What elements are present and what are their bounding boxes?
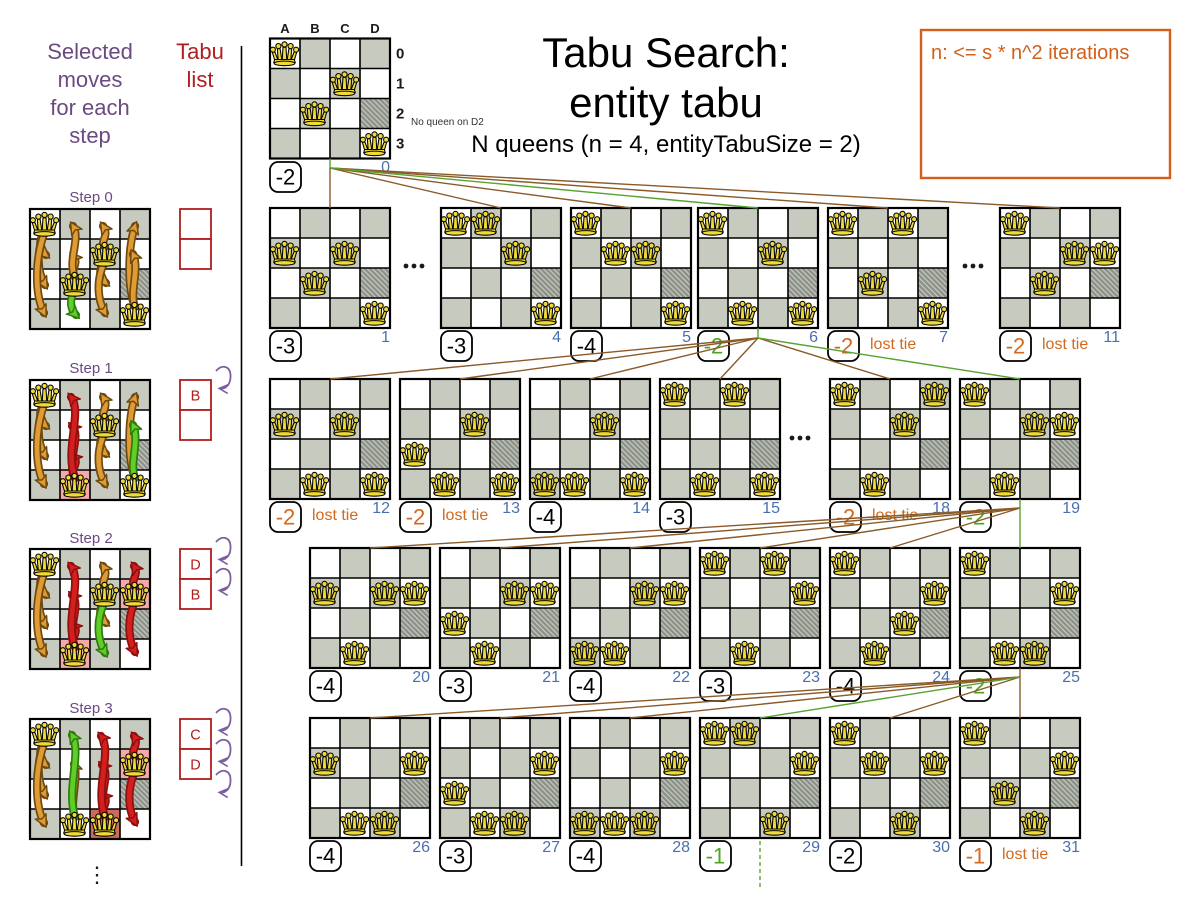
svg-text:-2: -2 bbox=[834, 334, 854, 359]
svg-text:lost tie: lost tie bbox=[312, 507, 358, 524]
svg-text:-3: -3 bbox=[706, 674, 726, 699]
svg-text:-3: -3 bbox=[447, 334, 467, 359]
svg-text:30: 30 bbox=[932, 839, 950, 856]
svg-text:-2: -2 bbox=[704, 334, 724, 359]
svg-text:-4: -4 bbox=[316, 674, 336, 699]
svg-text:C: C bbox=[190, 728, 200, 744]
svg-text:-4: -4 bbox=[536, 505, 556, 530]
svg-text:20: 20 bbox=[412, 669, 430, 686]
svg-text:Tabu: Tabu bbox=[176, 39, 224, 64]
svg-text:28: 28 bbox=[672, 839, 690, 856]
svg-text:14: 14 bbox=[632, 500, 650, 517]
svg-text:7: 7 bbox=[939, 329, 948, 346]
svg-text:-2: -2 bbox=[966, 505, 986, 530]
svg-text:lost tie: lost tie bbox=[870, 336, 916, 353]
svg-text:-3: -3 bbox=[446, 844, 466, 869]
svg-text:29: 29 bbox=[802, 839, 820, 856]
svg-text:lost tie: lost tie bbox=[442, 507, 488, 524]
svg-text:-2: -2 bbox=[406, 505, 426, 530]
svg-text:6: 6 bbox=[809, 329, 818, 346]
svg-text:4: 4 bbox=[552, 329, 561, 346]
svg-text:B: B bbox=[310, 21, 319, 36]
svg-text:Step 2: Step 2 bbox=[69, 530, 112, 547]
svg-text:26: 26 bbox=[412, 839, 430, 856]
svg-text:D: D bbox=[190, 558, 200, 574]
svg-text:Tabu Search:: Tabu Search: bbox=[542, 29, 790, 76]
svg-text:step: step bbox=[69, 123, 111, 148]
svg-text:D: D bbox=[370, 21, 379, 36]
svg-text:for each: for each bbox=[50, 95, 130, 120]
svg-text:22: 22 bbox=[672, 669, 690, 686]
svg-text:-4: -4 bbox=[576, 674, 596, 699]
svg-text:13: 13 bbox=[502, 500, 520, 517]
svg-text:n: <= s * n^2 iterations: n: <= s * n^2 iterations bbox=[931, 42, 1129, 64]
svg-text:27: 27 bbox=[542, 839, 560, 856]
svg-text:-3: -3 bbox=[446, 674, 466, 699]
svg-text:3: 3 bbox=[396, 136, 404, 153]
svg-text:-1: -1 bbox=[966, 844, 986, 869]
svg-text:Step 0: Step 0 bbox=[69, 189, 112, 206]
svg-text:23: 23 bbox=[802, 669, 820, 686]
svg-text:15: 15 bbox=[762, 500, 780, 517]
svg-text:B: B bbox=[191, 389, 201, 405]
svg-text:21: 21 bbox=[542, 669, 560, 686]
svg-text:-3: -3 bbox=[276, 334, 296, 359]
svg-text:0: 0 bbox=[396, 46, 404, 63]
svg-text:entity tabu: entity tabu bbox=[569, 79, 763, 126]
svg-text:Step 3: Step 3 bbox=[69, 700, 112, 717]
svg-text:lost tie: lost tie bbox=[1042, 336, 1088, 353]
svg-text:-4: -4 bbox=[316, 844, 336, 869]
svg-text:-3: -3 bbox=[666, 505, 686, 530]
svg-text:N queens (n = 4, entityTabuSiz: N queens (n = 4, entityTabuSize = 2) bbox=[471, 131, 861, 158]
svg-text:12: 12 bbox=[372, 500, 390, 517]
svg-text:lost tie: lost tie bbox=[1002, 846, 1048, 863]
svg-text:19: 19 bbox=[1062, 500, 1080, 517]
svg-text:No queen on D2: No queen on D2 bbox=[411, 117, 484, 128]
svg-text:B: B bbox=[191, 588, 201, 604]
svg-text:2: 2 bbox=[396, 106, 404, 123]
svg-text:-2: -2 bbox=[1006, 334, 1026, 359]
svg-text:-4: -4 bbox=[576, 844, 596, 869]
svg-text:-2: -2 bbox=[276, 165, 296, 190]
svg-text:D: D bbox=[190, 758, 200, 774]
svg-text:A: A bbox=[280, 21, 290, 36]
svg-text:-1: -1 bbox=[706, 844, 726, 869]
svg-text:1: 1 bbox=[381, 329, 390, 346]
svg-text:moves: moves bbox=[58, 67, 123, 92]
svg-text:31: 31 bbox=[1062, 839, 1080, 856]
svg-text:1: 1 bbox=[396, 76, 404, 93]
svg-text:⋮: ⋮ bbox=[86, 862, 108, 887]
svg-text:-2: -2 bbox=[836, 844, 856, 869]
svg-text:11: 11 bbox=[1103, 329, 1120, 346]
svg-text:Selected: Selected bbox=[47, 39, 133, 64]
svg-text:list: list bbox=[187, 67, 214, 92]
svg-text:C: C bbox=[340, 21, 350, 36]
svg-text:Step 1: Step 1 bbox=[69, 360, 112, 377]
svg-text:25: 25 bbox=[1062, 669, 1080, 686]
svg-text:-2: -2 bbox=[966, 674, 986, 699]
svg-text:5: 5 bbox=[682, 329, 691, 346]
svg-text:-2: -2 bbox=[276, 505, 296, 530]
